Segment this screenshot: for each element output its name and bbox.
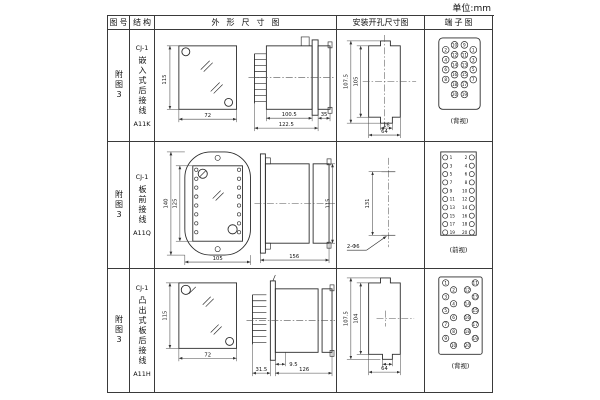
terminal-pin-number: 17 — [473, 322, 479, 328]
structure-cell-a11q: CJ-1 板前接线 A11Q — [130, 142, 155, 269]
outline-drawing-cell-a11h: 115 72 9.5 31.5 126 — [155, 269, 337, 393]
structure-cell-a11k: CJ-1 嵌入式后接线 A11K — [130, 30, 155, 142]
model-label: CJ-1 — [136, 284, 149, 292]
side-view — [254, 154, 335, 253]
terminal-pin-number: 5 — [444, 308, 447, 314]
terminal-diagram-a11k: 2468101214161820911131517191357 (背视) — [425, 30, 492, 141]
terminal-pin — [469, 196, 474, 201]
fig-no-cell-a11q: 附图3 — [108, 142, 130, 269]
terminal-pin-number: 14 — [465, 301, 471, 307]
terminal-pin-number: 10 — [451, 343, 457, 349]
outline-drawing-cell-a11q: 140 125 105 156 115 — [155, 142, 337, 269]
dim-label: 131 — [365, 199, 371, 209]
terminal-pin — [443, 180, 448, 185]
terminal-pin-number: 11 — [473, 280, 479, 286]
terminal-pin-number: 6 — [465, 172, 468, 178]
terminal-pin-number: 16 — [462, 213, 468, 219]
dim-label: 105 — [213, 256, 223, 262]
terminal-pin-number: 20 — [452, 92, 458, 97]
header-fig-no: 图号 — [108, 16, 130, 30]
terminal-pin-number: 5 — [472, 67, 475, 72]
install-drawing-cell-a11h: 107.5 104 64 — [337, 269, 425, 393]
model-label: CJ-1 — [136, 44, 149, 52]
terminal-pin — [443, 205, 448, 210]
terminal-pin-number: 19 — [473, 336, 479, 342]
terminal-pin — [469, 230, 474, 235]
terminal-diagram-a11h: 1357924681012141618201113151719 (背视) — [425, 269, 492, 392]
dim-label: 156 — [289, 254, 300, 260]
terminal-drawing-cell-a11k: 2468101214161820911131517191357 (背视) — [425, 30, 493, 142]
structure-cell-a11h: CJ-1 凸出式板后接线 A11H — [130, 269, 155, 393]
terminal-pin-number: 1 — [450, 155, 453, 161]
dim-label: 125 — [172, 199, 178, 209]
terminal-pin-number: 16 — [465, 315, 471, 321]
unit-label: 单位:mm — [449, 1, 494, 16]
terminal-pin-number: 7 — [444, 322, 447, 328]
pin-grid: 2468101214161820911131517191357 — [442, 41, 476, 97]
terminal-pin — [469, 163, 474, 168]
outline-drawing-cell-a11k: 115 72 100.5 35 122.5 — [155, 30, 337, 142]
side-view — [246, 275, 335, 360]
dim-label: 115 — [162, 311, 168, 321]
dimensions: 115 72 9.5 31.5 126 — [162, 283, 332, 376]
terminal-diagram-a11q: 1357911131517192468101214161820 (前视) — [425, 142, 492, 268]
terminal-pin-number: 5 — [450, 172, 453, 178]
terminal-pin-number: 4 — [465, 163, 468, 169]
terminal-drawing-cell-a11h: 1357924681012141618201113151719 (背视) — [425, 269, 493, 393]
terminal-pin-number: 3 — [472, 57, 475, 62]
install-drawing-a11h: 107.5 104 64 — [337, 269, 424, 392]
code-label: A11K — [134, 120, 151, 128]
header-structure: 结构 — [130, 16, 155, 30]
terminal-pin-number: 12 — [462, 197, 468, 203]
terminal-pin-number: 15 — [462, 72, 468, 77]
dim-label: 126 — [299, 367, 310, 373]
terminal-pin — [469, 180, 474, 185]
terminal-pin-number: 15 — [450, 213, 456, 219]
front-view — [179, 283, 237, 348]
front-view — [179, 46, 237, 109]
hole-callout: 2-Φ6 — [347, 244, 360, 250]
terminal-pin — [443, 163, 448, 168]
terminal-pin — [469, 213, 474, 218]
side-view — [248, 37, 334, 115]
pin-grid: 1357911131517192468101214161820 — [443, 155, 475, 236]
terminal-pin-number: 2 — [465, 155, 468, 161]
dim-label: 105 — [353, 77, 359, 87]
fig-no-label: 附图3 — [115, 70, 123, 101]
dim-label: 107.5 — [343, 74, 349, 89]
dim-label: 16 — [383, 123, 390, 129]
install-drawing-a11k: 107.5 105 16 64 — [337, 30, 424, 141]
terminal-pin-number: 14 — [462, 205, 468, 211]
terminal-pin-number: 1 — [444, 280, 447, 286]
terminal-pin-number: 4 — [452, 301, 455, 307]
install-drawing-cell-a11k: 107.5 105 16 64 — [337, 30, 425, 142]
dim-label: 9.5 — [289, 362, 297, 368]
spec-table: 图号 结构 外形尺寸图 安装开孔尺寸图 端子图 附图3 CJ-1 嵌入式后接线 … — [107, 15, 493, 393]
terminal-pin-number: 9 — [444, 336, 447, 342]
terminal-pin-number: 7 — [450, 180, 453, 186]
terminal-pin-number: 1 — [472, 47, 475, 52]
mount-type-label: 嵌入式后接线 — [138, 56, 146, 116]
front-view — [185, 152, 251, 255]
dimensions: 115 72 100.5 35 122.5 — [162, 46, 330, 131]
terminal-pin-number: 13 — [473, 294, 479, 300]
dim-label: 140 — [163, 199, 169, 209]
terminal-pin-number: 12 — [465, 287, 471, 293]
terminal-pin-number: 9 — [463, 42, 466, 47]
page: 单位:mm 图号 结构 外形尺寸图 安装开孔尺寸图 端子图 附图3 CJ-1 嵌… — [0, 0, 600, 400]
terminal-pin — [469, 188, 474, 193]
fig-no-cell-a11k: 附图3 — [108, 30, 130, 142]
terminal-pin-number: 9 — [450, 188, 453, 194]
terminal-pin-number: 14 — [452, 62, 458, 67]
terminal-pin-number: 6 — [444, 67, 447, 72]
dim-label: 122.5 — [279, 122, 294, 128]
terminal-pin — [443, 221, 448, 226]
terminal-pin-number: 16 — [452, 72, 458, 77]
dim-label: 104 — [353, 313, 359, 324]
terminal-pin-number: 15 — [473, 308, 479, 314]
view-caption: (背视) — [452, 361, 470, 370]
mount-type-label: 板前接线 — [138, 185, 146, 225]
dimensions: 107.5 104 64 — [343, 278, 400, 375]
terminal-pin-number: 7 — [472, 77, 475, 82]
model-label: CJ-1 — [136, 173, 149, 181]
terminal-pin-number: 13 — [462, 62, 468, 67]
code-label: A11Q — [133, 229, 151, 237]
terminal-pin — [469, 205, 474, 210]
terminal-pin — [469, 221, 474, 226]
dim-label: 100.5 — [282, 112, 297, 118]
terminal-pin-number: 20 — [462, 230, 468, 236]
terminal-pin — [443, 230, 448, 235]
dim-label: 72 — [204, 352, 211, 358]
terminal-pin-number: 10 — [452, 42, 458, 47]
header-install-dims: 安装开孔尺寸图 — [337, 16, 425, 30]
terminal-pin-number: 3 — [450, 163, 453, 169]
terminal-pin-number: 6 — [452, 315, 455, 321]
terminal-pin-number: 8 — [465, 180, 468, 186]
terminal-pin-number: 8 — [444, 77, 447, 82]
dim-label: 35 — [321, 112, 328, 118]
terminal-pin-number: 18 — [465, 329, 471, 335]
terminal-pin-number: 17 — [450, 222, 456, 228]
code-label: A11H — [133, 370, 151, 378]
terminal-pin-number: 20 — [465, 343, 471, 349]
terminal-pin — [443, 196, 448, 201]
mount-type-label: 凸出式板后接线 — [138, 296, 146, 366]
header-terminal: 端子图 — [425, 16, 493, 30]
pin-grid: 1357924681012141618201113151719 — [443, 280, 479, 349]
terminal-pin-number: 19 — [450, 230, 456, 236]
terminal-pin — [443, 213, 448, 218]
outline-drawing-a11h: 115 72 9.5 31.5 126 — [155, 269, 336, 392]
outline-drawing-a11k: 115 72 100.5 35 122.5 — [155, 30, 336, 141]
terminal-pin-number: 12 — [452, 52, 458, 57]
terminal-pin-number: 18 — [462, 222, 468, 228]
install-drawing-a11q: 131 2-Φ6 — [337, 142, 424, 268]
outline-drawing-a11q: 140 125 105 156 115 — [155, 142, 336, 268]
terminal-pin — [443, 171, 448, 176]
terminal-pin — [469, 155, 474, 160]
terminal-pin-number: 8 — [452, 329, 455, 335]
terminal-pin-number: 17 — [462, 82, 468, 87]
terminal-pin — [443, 155, 448, 160]
terminal-pin-number: 2 — [452, 287, 455, 293]
view-caption: (背视) — [451, 116, 469, 125]
terminal-pin-number: 11 — [462, 52, 468, 57]
dim-label: 31.5 — [256, 367, 268, 373]
terminal-pin — [469, 171, 474, 176]
terminal-pin-number: 2 — [444, 47, 447, 52]
fig-no-cell-a11h: 附图3 — [108, 269, 130, 393]
terminal-pin — [443, 188, 448, 193]
view-caption: (前视) — [450, 245, 468, 254]
terminal-pin-number: 18 — [452, 82, 458, 87]
dim-label: 115 — [162, 75, 168, 85]
terminal-pin-number: 11 — [450, 197, 456, 203]
header-outline-dims: 外形尺寸图 — [155, 16, 337, 30]
terminal-pin-number: 3 — [444, 294, 447, 300]
dimensions: 131 2-Φ6 — [347, 172, 389, 250]
dim-label: 115 — [326, 199, 332, 209]
fig-no-label: 附图3 — [115, 190, 123, 221]
terminal-pin-number: 13 — [450, 205, 456, 211]
dim-label: 72 — [204, 113, 211, 119]
install-drawing-cell-a11q: 131 2-Φ6 — [337, 142, 425, 269]
terminal-pin-number: 10 — [462, 188, 468, 194]
dim-label: 64 — [381, 129, 388, 135]
dim-label: 107.5 — [343, 311, 349, 326]
terminal-pin-number: 4 — [444, 57, 447, 62]
terminal-drawing-cell-a11q: 1357911131517192468101214161820 (前视) — [425, 142, 493, 269]
terminal-pin-number: 19 — [462, 92, 468, 97]
fig-no-label: 附图3 — [115, 315, 123, 346]
dim-label: 64 — [381, 366, 388, 372]
